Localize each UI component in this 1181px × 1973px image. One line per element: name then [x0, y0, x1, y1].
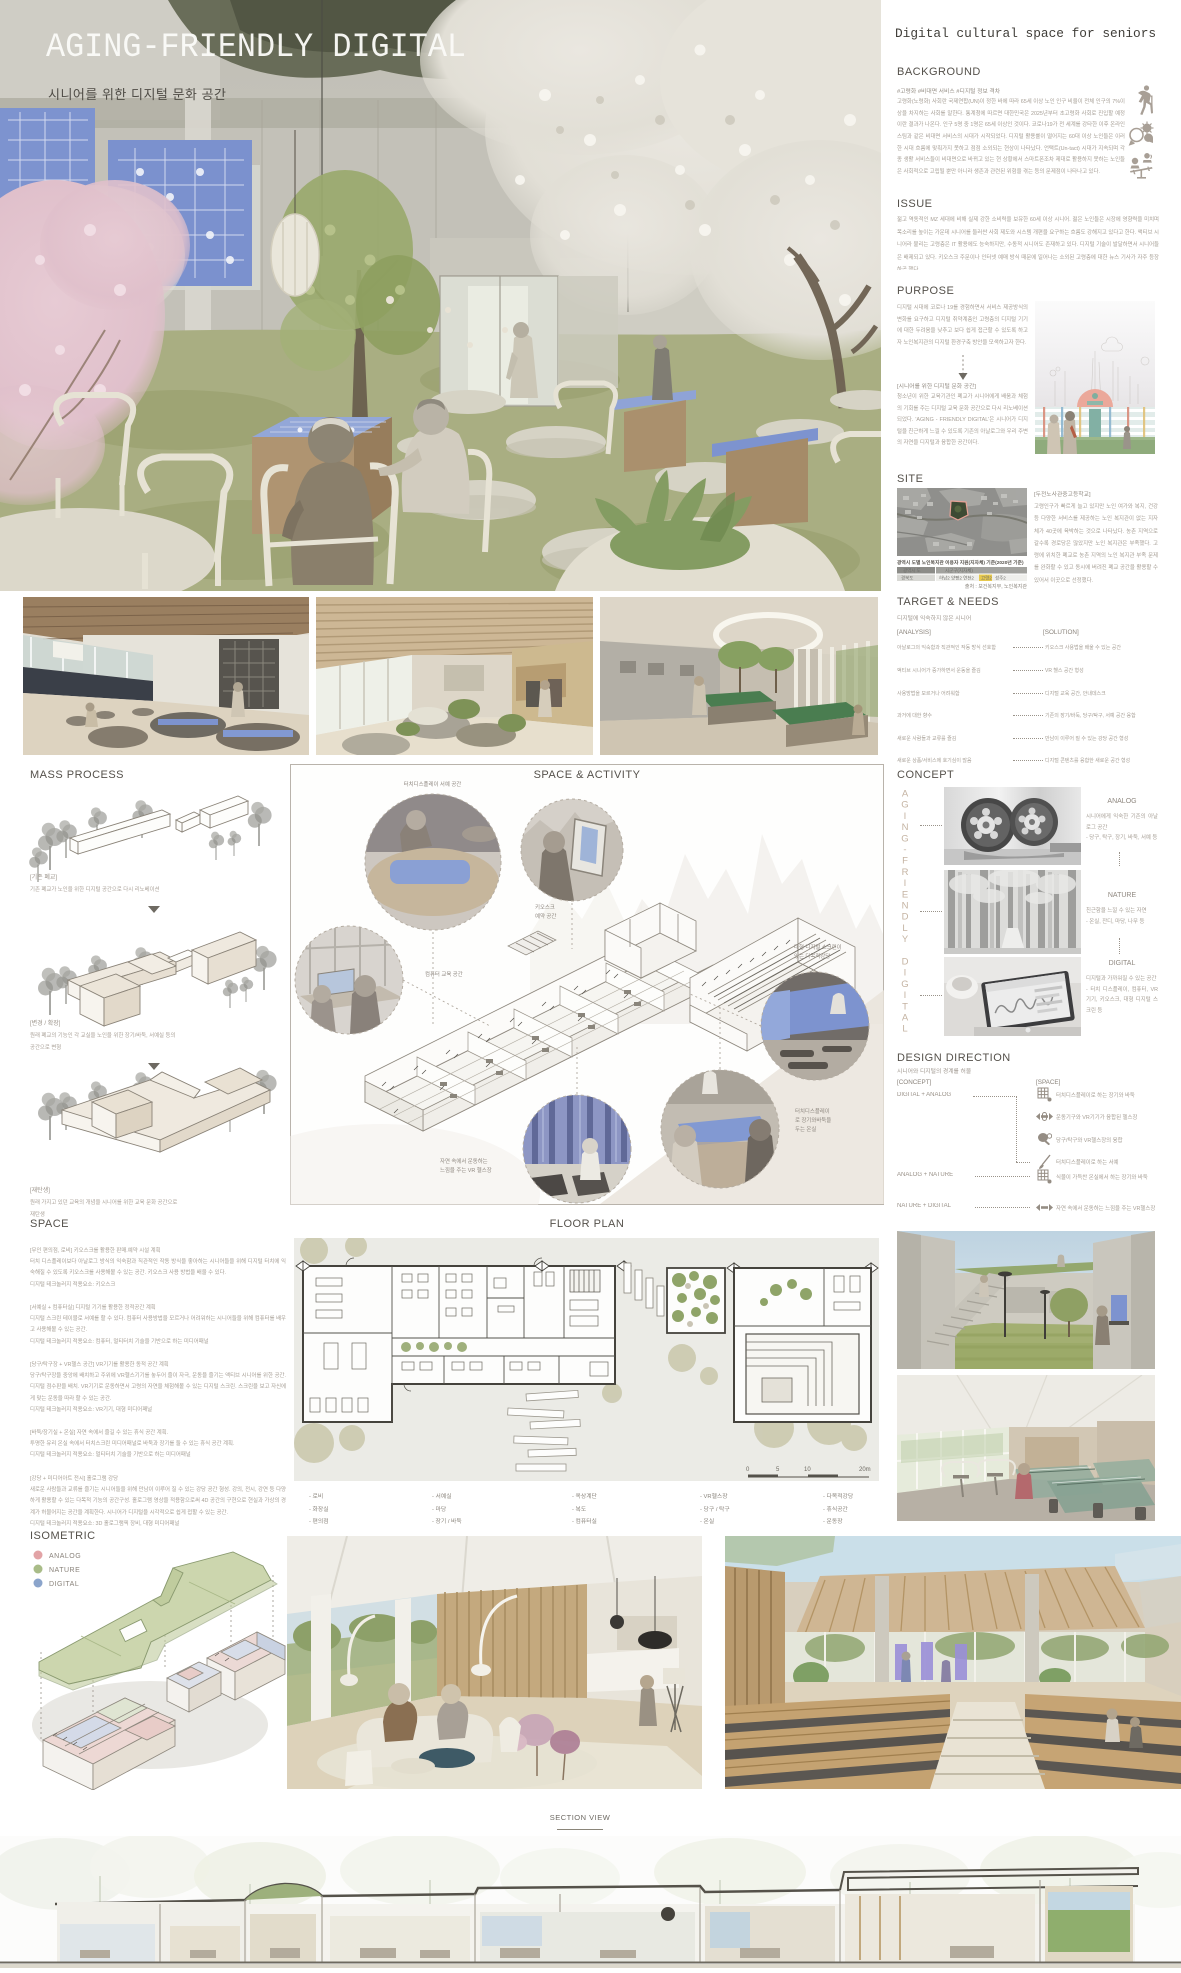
svg-text:10: 10 [804, 1467, 811, 1473]
svg-text:G: G [901, 979, 908, 990]
svg-text:A: A [902, 1013, 909, 1024]
svg-text:원래 폐교의 기능인 각 교실을 노인을 위한 장기/바둑,: 원래 폐교의 기능인 각 교실을 노인을 위한 장기/바둑, 서예실 등의 [30, 1031, 175, 1039]
svg-text:D: D [902, 957, 909, 968]
svg-text:시군구(지자체): 시군구(지자체) [945, 567, 973, 574]
svg-text:T: T [902, 1001, 908, 1012]
svg-text:E: E [902, 889, 908, 900]
svg-text:N: N [902, 822, 909, 833]
svg-text:L: L [902, 1024, 907, 1035]
svg-text:원래 가지고 있던 교육의 개념을 시니어를 위한 교육 문: 원래 가지고 있던 교육의 개념을 시니어를 위한 교육 문화 공간으로 [30, 1198, 177, 1206]
svg-text:하남2 양평2 연천2: 하남2 양평2 연천2 [939, 575, 974, 582]
svg-text:I: I [904, 990, 907, 1001]
svg-text:G: G [901, 800, 908, 811]
svg-text:N: N [902, 901, 909, 912]
svg-text:20m: 20m [859, 1467, 871, 1473]
svg-text:재탄생: 재탄생 [30, 1210, 45, 1218]
svg-text:고령2: 고령2 [981, 575, 992, 581]
svg-text:[재탄생]: [재탄생] [30, 1186, 50, 1194]
svg-text:L: L [902, 923, 907, 934]
svg-text:기존 폐교가 노인을 위한 디지털 공간으로 다시 리노베이: 기존 폐교가 노인을 위한 디지털 공간으로 다시 리노베이션 [30, 885, 160, 893]
svg-text:R: R [902, 867, 909, 878]
svg-text:-: - [903, 845, 906, 856]
svg-text:A: A [902, 789, 909, 800]
svg-text:성주2: 성주2 [995, 575, 1006, 582]
svg-text:D: D [902, 912, 909, 923]
svg-text:[기존 폐교]: [기존 폐교] [30, 873, 57, 881]
svg-text:I: I [904, 878, 907, 889]
svg-text:[변경 / 확장]: [변경 / 확장] [30, 1019, 61, 1027]
svg-text:G: G [901, 833, 908, 844]
svg-text:Y: Y [902, 934, 909, 945]
svg-text:시니어를 위한 디지털 문화 공간: 시니어를 위한 디지털 문화 공간 [48, 87, 226, 102]
svg-text:I: I [904, 968, 907, 979]
svg-text:AGING-FRIENDLY DIGITAL: AGING-FRIENDLY DIGITAL [46, 29, 466, 67]
svg-text:광역시 도: 광역시 도 [903, 567, 921, 574]
svg-text:경북도: 경북도 [901, 575, 913, 582]
svg-text:I: I [904, 811, 907, 822]
svg-text:F: F [902, 856, 908, 867]
svg-text:공간으로 변형: 공간으로 변형 [30, 1043, 61, 1051]
